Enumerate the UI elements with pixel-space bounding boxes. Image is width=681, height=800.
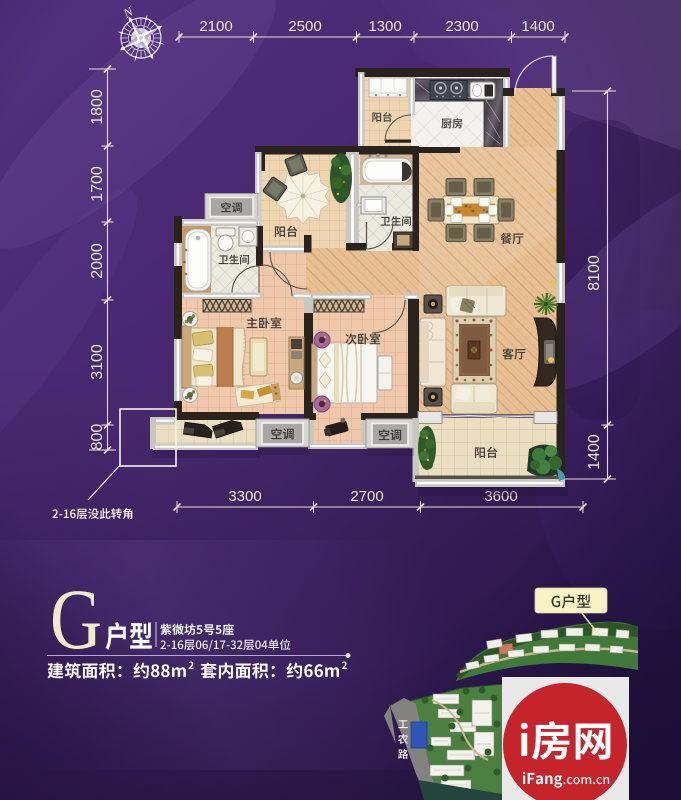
svg-text:2500: 2500 [288, 18, 321, 35]
svg-text:G: G [50, 571, 102, 667]
svg-text:3300: 3300 [228, 488, 261, 505]
svg-text:1700: 1700 [89, 166, 106, 202]
svg-text:1400: 1400 [521, 18, 554, 35]
svg-text:800: 800 [89, 424, 106, 451]
svg-text:2100: 2100 [199, 18, 232, 35]
svg-text:3100: 3100 [89, 344, 106, 380]
svg-text:8100: 8100 [586, 255, 603, 291]
svg-text:2000: 2000 [89, 243, 106, 279]
svg-text:1400: 1400 [586, 434, 603, 470]
svg-text:1800: 1800 [89, 89, 106, 125]
svg-text:1300: 1300 [368, 18, 401, 35]
svg-text:2300: 2300 [445, 18, 478, 35]
svg-text:2700: 2700 [350, 488, 383, 505]
